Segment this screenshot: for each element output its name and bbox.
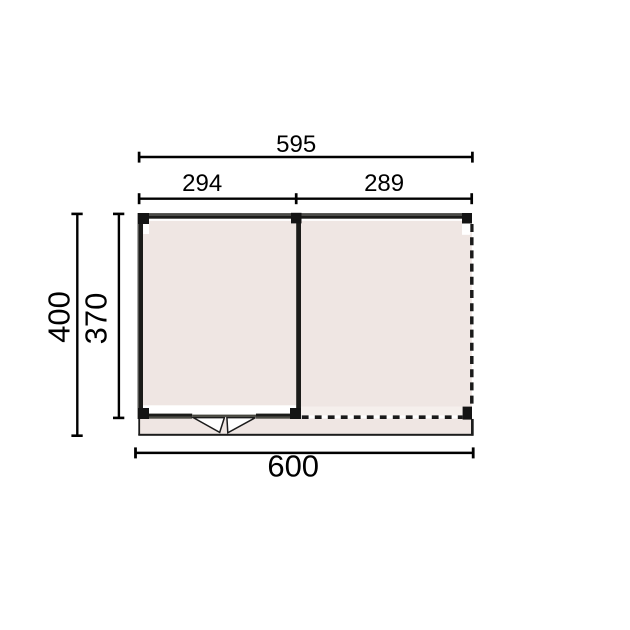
svg-text:294: 294 xyxy=(182,170,222,197)
svg-text:400: 400 xyxy=(41,291,76,343)
svg-text:600: 600 xyxy=(267,448,319,483)
svg-text:370: 370 xyxy=(79,293,114,345)
svg-text:289: 289 xyxy=(364,170,404,197)
svg-text:595: 595 xyxy=(276,131,316,158)
